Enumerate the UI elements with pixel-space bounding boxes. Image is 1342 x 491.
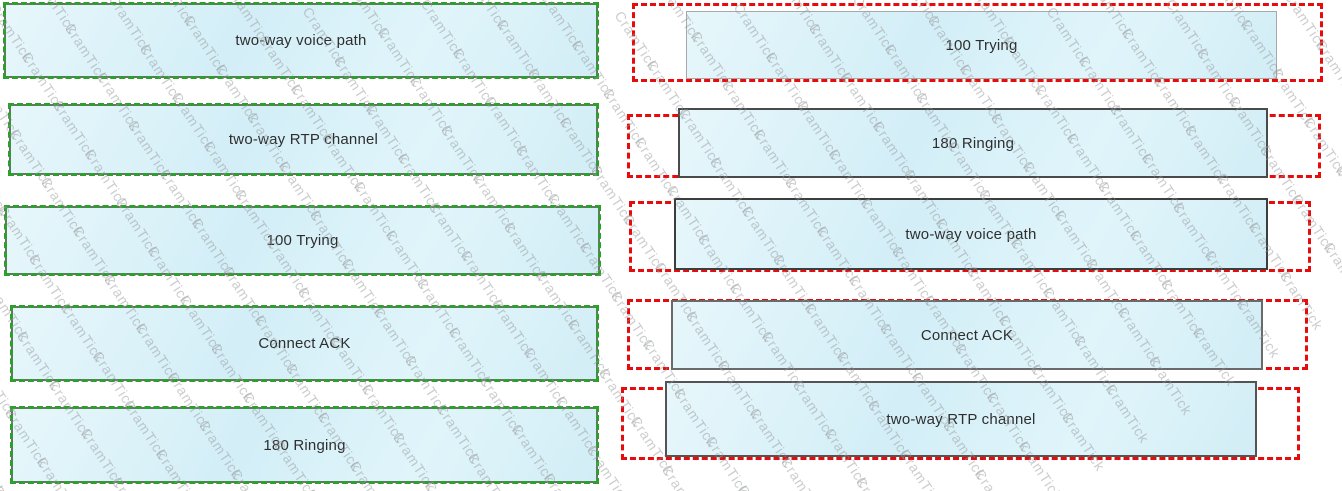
watermark-text: CramTick (734, 482, 784, 491)
drag-source-connect-ack[interactable]: Connect ACK (11, 306, 598, 381)
drag-drop-question-area: two-way voice path two-way RTP channel 1… (0, 0, 1342, 491)
dropped-item-100-trying[interactable]: 100 Trying (686, 11, 1277, 79)
dropped-item-180-ringing[interactable]: 180 Ringing (678, 108, 1268, 178)
watermark-text: CramTick (0, 482, 40, 491)
watermark-text: CramTick (853, 474, 903, 491)
tile-label: 100 Trying (266, 232, 338, 249)
watermark-text: CramTick (1320, 239, 1342, 304)
drag-source-100-trying[interactable]: 100 Trying (5, 206, 600, 275)
tile-label: 180 Ringing (263, 437, 345, 454)
watermark-text: CramTick (972, 466, 1022, 491)
tile-label: 100 Trying (945, 37, 1017, 54)
watermark-text: CramTick (0, 231, 1, 296)
tile-label: two-way RTP channel (886, 411, 1035, 428)
tile-label: two-way voice path (905, 226, 1036, 243)
watermark-text: CramTick (0, 433, 8, 491)
dropped-item-two-way-voice-path[interactable]: two-way voice path (674, 198, 1268, 270)
tile-label: 180 Ringing (932, 135, 1014, 152)
tile-label: two-way voice path (235, 32, 366, 49)
watermark-text: CramTick (659, 462, 709, 491)
watermark-text: CramTick (303, 486, 353, 491)
dropped-item-connect-ack[interactable]: Connect ACK (671, 300, 1263, 370)
drag-source-180-ringing[interactable]: 180 Ringing (11, 407, 598, 483)
watermark-text: CramTick (1332, 162, 1342, 227)
tile-label: Connect ACK (258, 335, 350, 352)
dropped-item-two-way-rtp-channel[interactable]: two-way RTP channel (665, 381, 1257, 457)
tile-label: two-way RTP channel (229, 131, 378, 148)
drag-source-two-way-rtp-channel[interactable]: two-way RTP channel (9, 104, 598, 175)
drag-source-two-way-voice-path[interactable]: two-way voice path (4, 3, 598, 78)
tile-label: Connect ACK (921, 327, 1013, 344)
